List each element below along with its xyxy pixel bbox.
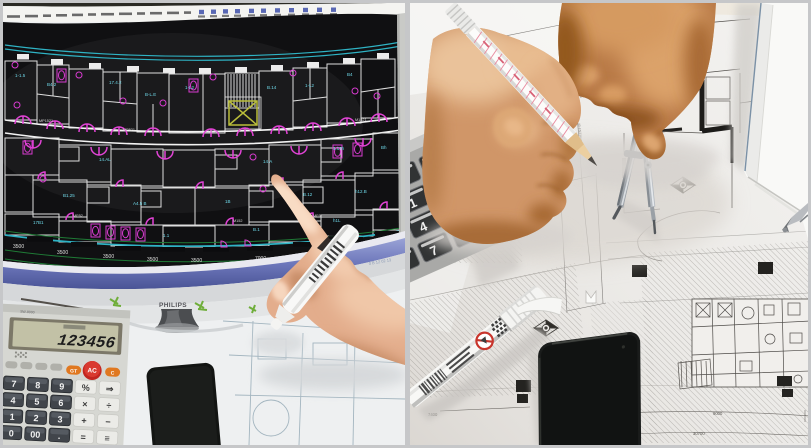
svg-text:9000: 9000 xyxy=(713,411,723,416)
svg-text:123456: 123456 xyxy=(56,332,117,353)
svg-text:6: 6 xyxy=(58,398,64,408)
svg-text:B.14: B.14 xyxy=(267,85,277,90)
svg-text:9: 9 xyxy=(59,381,65,391)
svg-text:00: 00 xyxy=(30,429,41,440)
svg-text:A4.5 B: A4.5 B xyxy=(133,201,147,206)
svg-text:+: + xyxy=(81,416,87,426)
svg-text:30700: 30700 xyxy=(693,431,705,436)
svg-text:1: 1 xyxy=(9,412,15,422)
svg-text:1.17h: 1.17h xyxy=(333,146,345,151)
svg-text:1-L2: 1-L2 xyxy=(305,83,315,88)
svg-text:≡: ≡ xyxy=(104,433,110,443)
svg-text:1B: 1B xyxy=(225,199,231,204)
svg-text:B4: B4 xyxy=(347,72,353,77)
svg-text:.: . xyxy=(58,431,61,441)
svg-text:8: 8 xyxy=(35,380,41,390)
svg-text:%: % xyxy=(81,383,90,393)
svg-text:=: = xyxy=(80,432,86,442)
svg-text:2: 2 xyxy=(33,413,39,423)
svg-text:3500: 3500 xyxy=(147,257,158,263)
svg-text:B-L.E: B-L.E xyxy=(145,92,156,97)
svg-text:M152: M152 xyxy=(233,219,243,223)
svg-text:SW-8000: SW-8000 xyxy=(20,310,35,315)
svg-text:MP21: MP21 xyxy=(293,126,303,130)
svg-text:17B1: 17B1 xyxy=(33,220,44,225)
svg-text:MP1521: MP1521 xyxy=(39,119,53,123)
svg-text:1-L2: 1-L2 xyxy=(185,85,195,90)
svg-text:1-1.5: 1-1.5 xyxy=(15,73,26,78)
svg-text:B1.25: B1.25 xyxy=(63,193,75,198)
svg-text:h12.B: h12.B xyxy=(355,189,367,194)
svg-text:h1L: h1L xyxy=(333,218,341,223)
svg-text:M1521: M1521 xyxy=(355,118,367,122)
svg-text:17.4.2: 17.4.2 xyxy=(109,80,122,85)
svg-text:÷: ÷ xyxy=(106,400,112,410)
svg-text:MP52: MP52 xyxy=(73,214,83,218)
svg-text:AC: AC xyxy=(87,367,97,374)
svg-text:M521: M521 xyxy=(208,130,218,134)
svg-text:14.A: 14.A xyxy=(263,159,272,164)
svg-text:MP521: MP521 xyxy=(123,128,135,132)
svg-text:MP5: MP5 xyxy=(313,214,321,218)
svg-text:⇒: ⇒ xyxy=(106,384,115,394)
svg-text:4: 4 xyxy=(10,395,16,405)
svg-text:−: − xyxy=(105,417,111,427)
svg-text:1.1: 1.1 xyxy=(163,233,170,238)
svg-text:7: 7 xyxy=(11,379,17,389)
svg-text:3500: 3500 xyxy=(13,244,24,250)
svg-text:Bh: Bh xyxy=(381,145,387,150)
svg-text:14.AL: 14.AL xyxy=(99,157,111,162)
svg-text:3500: 3500 xyxy=(103,254,114,260)
svg-text:PHILIPS: PHILIPS xyxy=(159,302,187,309)
svg-text:3500: 3500 xyxy=(191,258,202,264)
svg-text:0: 0 xyxy=(9,428,15,438)
svg-text:C: C xyxy=(111,371,115,377)
svg-text:B.1: B.1 xyxy=(253,227,260,232)
svg-text:5: 5 xyxy=(34,397,40,407)
svg-text:×: × xyxy=(82,399,88,409)
svg-text:B4.2: B4.2 xyxy=(47,82,57,87)
svg-text:B.12: B.12 xyxy=(303,192,313,197)
svg-text:3500: 3500 xyxy=(57,250,68,256)
svg-text:GT: GT xyxy=(70,368,77,374)
svg-text:3: 3 xyxy=(57,414,63,424)
